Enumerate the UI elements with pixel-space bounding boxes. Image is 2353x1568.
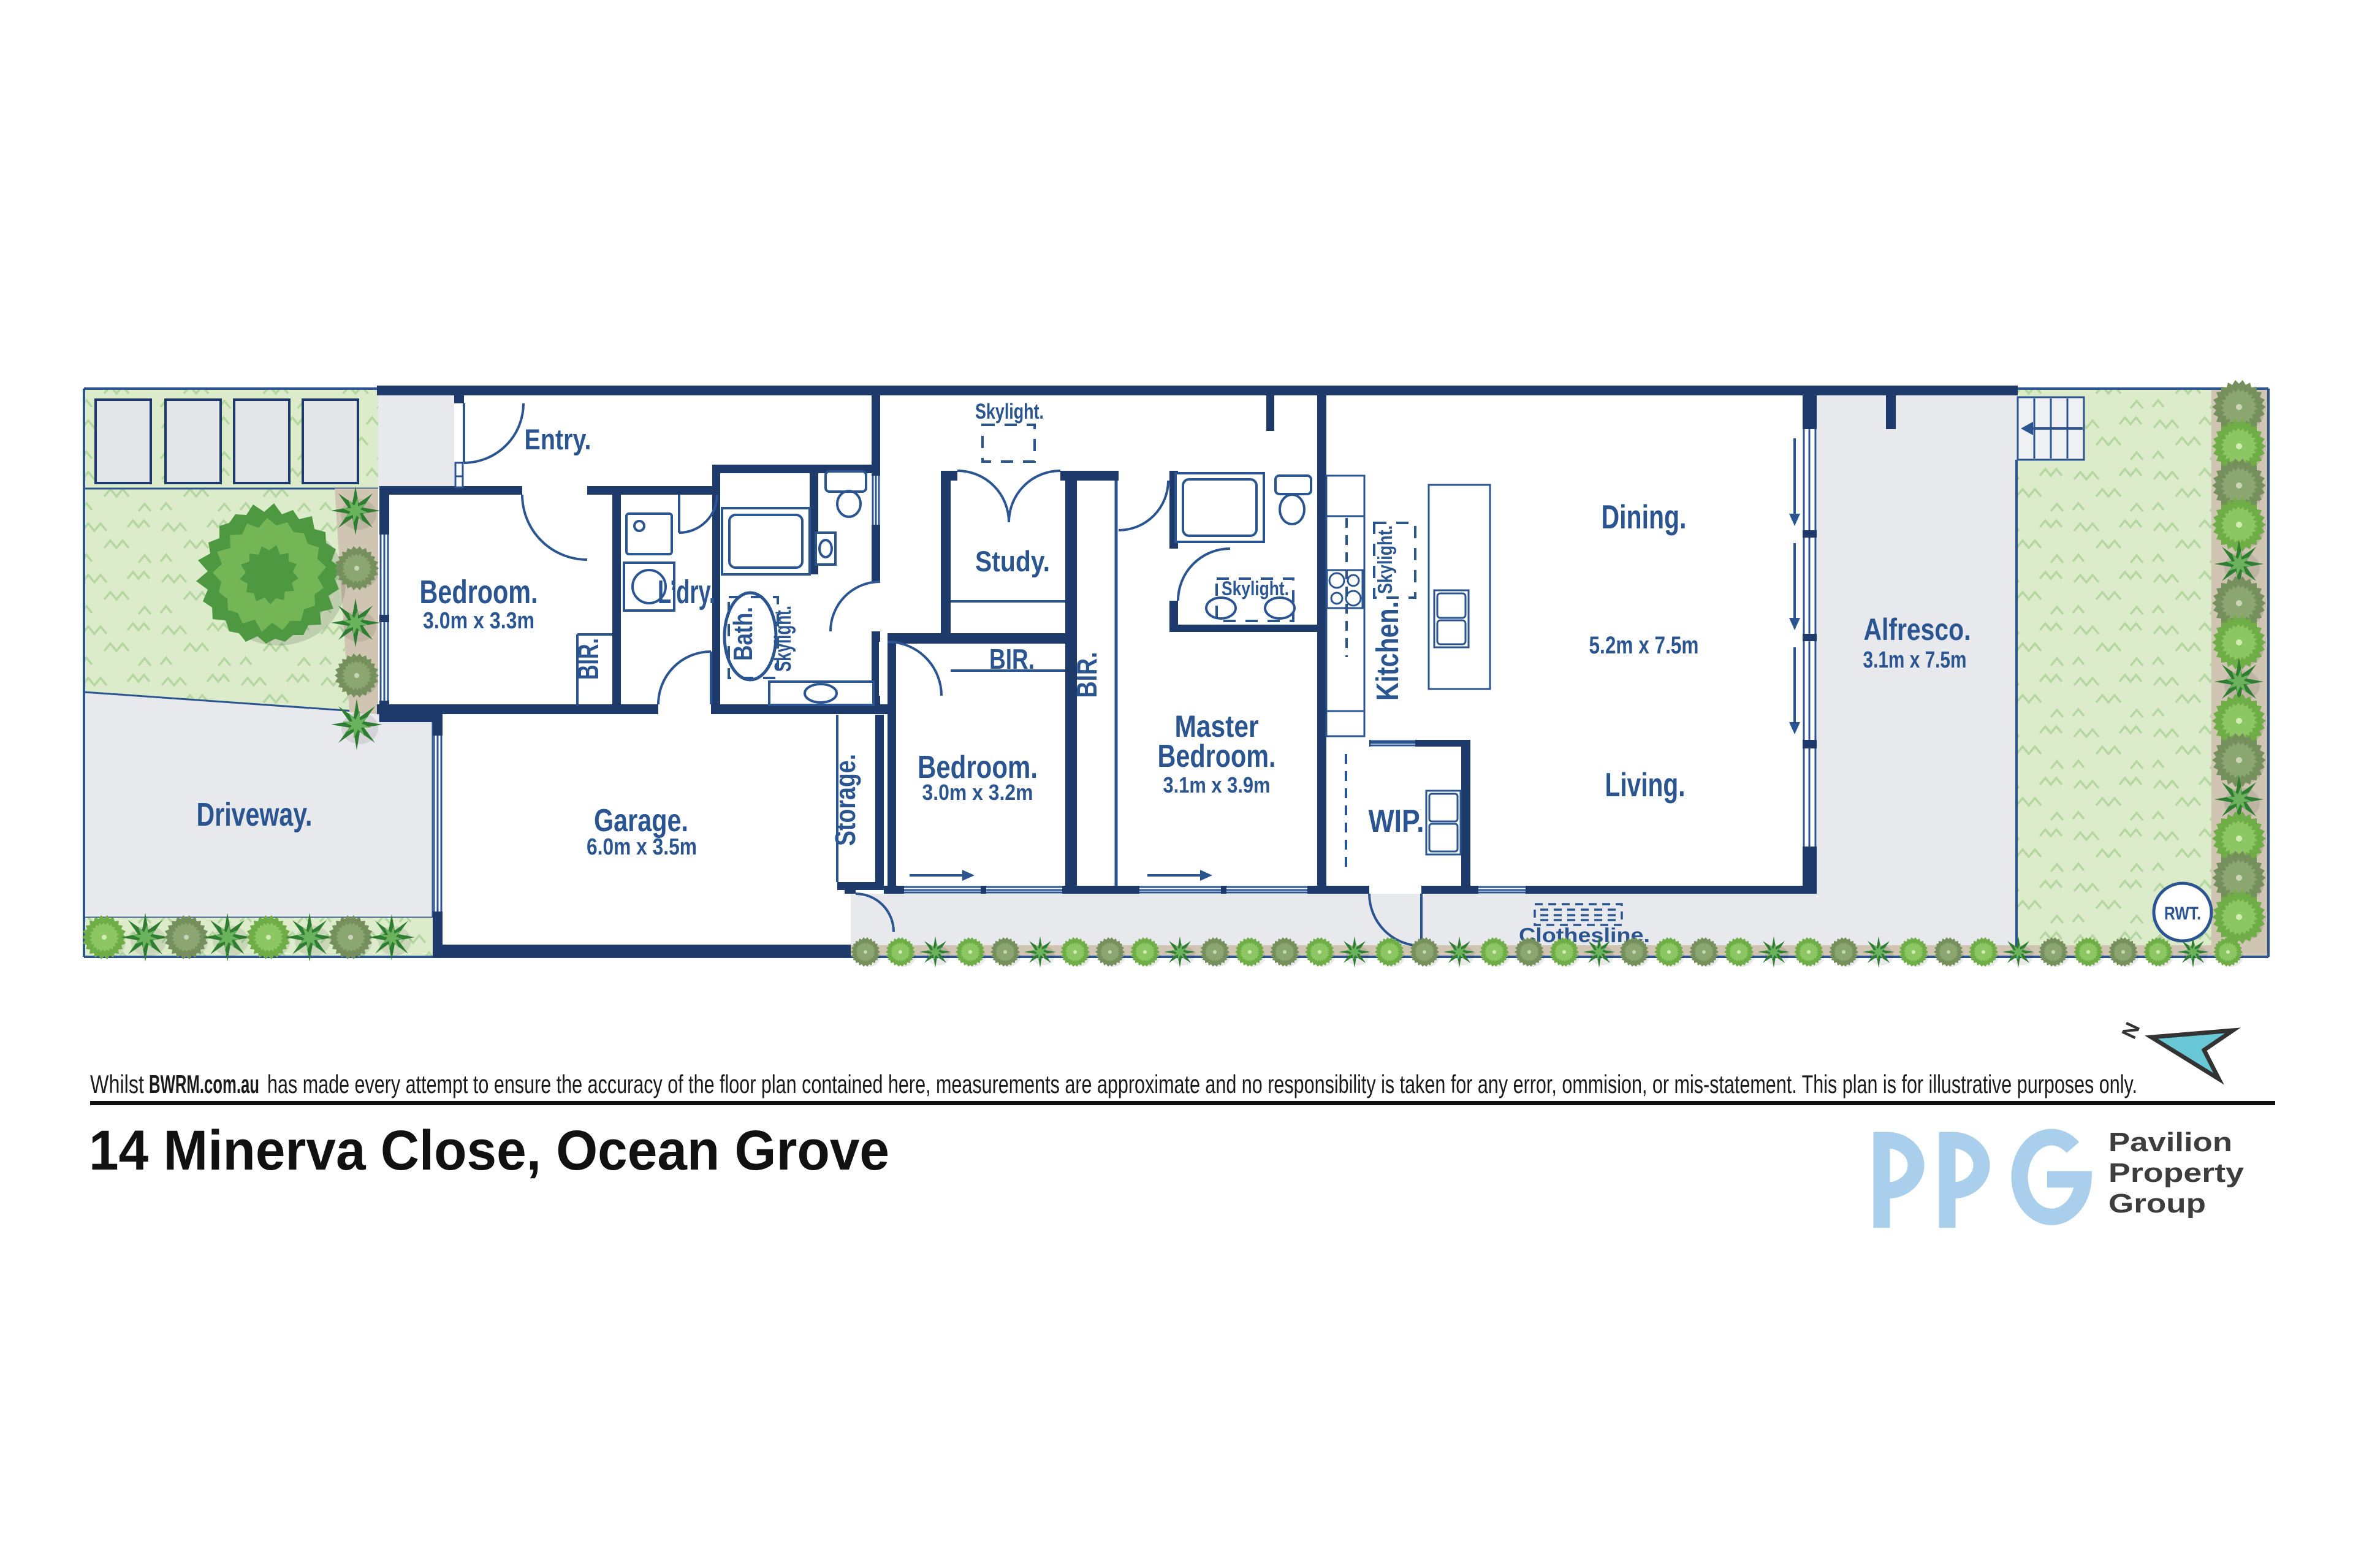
svg-text:Bedroom.: Bedroom. [420,574,538,611]
svg-text:Alfresco.: Alfresco. [1864,612,1971,647]
svg-text:Skylight.: Skylight. [770,606,796,672]
svg-text:N: N [2118,1019,2145,1042]
svg-text:BWRM.com.au: BWRM.com.au [149,1070,259,1098]
svg-text:5.2m x 7.5m: 5.2m x 7.5m [1589,632,1699,659]
svg-text:Group: Group [2108,1189,2206,1219]
svg-text:BIR.: BIR. [572,638,605,680]
svg-text:Storage.: Storage. [829,754,861,846]
svg-text:Property: Property [2108,1158,2245,1188]
svg-text:Entry.: Entry. [525,423,591,455]
svg-text:Bath.: Bath. [728,607,758,661]
svg-text:Skylight.: Skylight. [975,400,1044,424]
svg-text:BIR.: BIR. [1071,652,1103,698]
svg-text:Living.: Living. [1605,766,1686,804]
svg-text:3.0m x 3.2m: 3.0m x 3.2m [922,780,1033,805]
svg-text:has made every attempt to ensu: has made every attempt to ensure the acc… [267,1070,2137,1098]
svg-text:L’dry.: L’dry. [658,574,715,611]
svg-text:Study.: Study. [975,545,1050,577]
svg-text:Whilst: Whilst [90,1070,144,1098]
svg-text:RWT.: RWT. [2164,904,2201,924]
svg-text:Skylight.: Skylight. [1374,525,1396,594]
svg-text:3.0m x 3.3m: 3.0m x 3.3m [423,608,534,634]
svg-text:6.0m x 3.5m: 6.0m x 3.5m [587,834,697,860]
svg-text:Garage.: Garage. [594,803,688,839]
svg-text:3.1m x 7.5m: 3.1m x 7.5m [1863,647,1967,673]
svg-text:WIP.: WIP. [1369,804,1424,839]
svg-text:Dining.: Dining. [1602,498,1687,536]
svg-text:Driveway.: Driveway. [197,796,313,833]
svg-text:Skylight.: Skylight. [1222,577,1289,599]
svg-text:Bedroom.: Bedroom. [1158,739,1276,774]
svg-text:Pavilion: Pavilion [2108,1127,2232,1157]
svg-text:BIR.: BIR. [989,643,1035,675]
svg-text:3.1m x 3.9m: 3.1m x 3.9m [1163,772,1271,797]
svg-text:14 Minerva Close, Ocean Grove: 14 Minerva Close, Ocean Grove [89,1119,889,1182]
svg-text:Kitchen.: Kitchen. [1370,601,1405,701]
